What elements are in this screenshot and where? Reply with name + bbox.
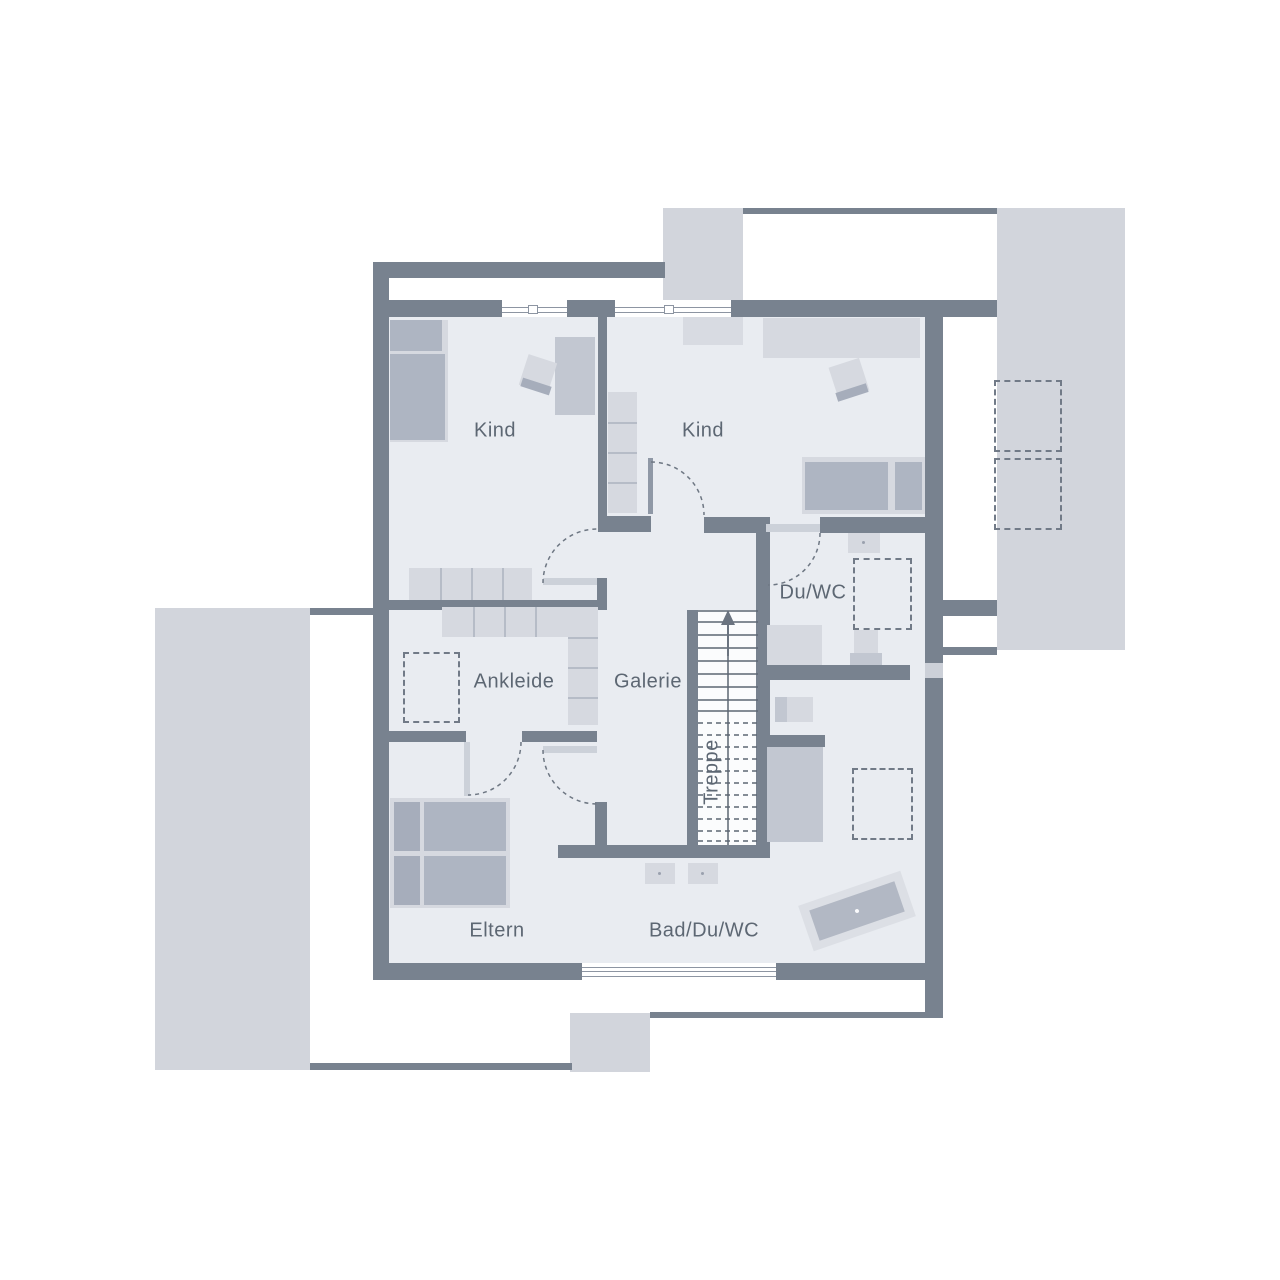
closet-divider <box>568 667 598 669</box>
wardrobe-divider <box>502 568 504 600</box>
roof-patch-top <box>663 208 743 300</box>
shower-outline <box>853 558 912 630</box>
window-frame-line <box>582 967 776 968</box>
closet-column <box>568 607 598 725</box>
shelf-divider <box>608 482 637 484</box>
room-label-treppe: Treppe <box>701 739 724 805</box>
bed-mattress <box>424 802 506 851</box>
toilet-bowl <box>854 630 878 654</box>
closet-divider <box>535 607 537 637</box>
balcony-furniture-outline <box>994 380 1062 452</box>
bed-pillow <box>895 462 922 510</box>
bed-mattress <box>424 856 506 905</box>
shelf-divider <box>608 452 637 454</box>
vanity-dot <box>701 872 704 875</box>
wall-duwc-south <box>770 665 910 680</box>
wardrobe-divider <box>440 568 442 600</box>
room-label-duwc: Du/WC <box>780 582 847 605</box>
desk <box>555 337 595 415</box>
door-leaf-galerie <box>543 746 597 753</box>
stairwell <box>698 610 758 845</box>
door-leaf-duwc <box>766 524 820 532</box>
washbasin-dot <box>862 541 865 544</box>
wall-kind-right-south-c <box>820 517 925 533</box>
wall-galerie-south <box>558 845 770 858</box>
closet-divider <box>504 607 506 637</box>
wall-exterior-left <box>373 262 389 980</box>
window-frame-line <box>582 971 776 972</box>
closet-divider <box>568 697 598 699</box>
balcony-furniture-outline <box>994 458 1062 530</box>
window-handle <box>528 305 538 314</box>
wall-galerie-north-stub <box>597 578 607 610</box>
balcony-edge-top <box>743 208 997 214</box>
room-label-eltern: Eltern <box>469 920 524 943</box>
wall-stub-right-b <box>943 647 997 655</box>
window-frame-line <box>582 976 776 977</box>
terrace-step-bottom <box>570 1013 650 1072</box>
wall-exterior-upper <box>373 262 665 278</box>
shelf-divider <box>608 422 637 424</box>
bed-mattress <box>805 462 888 510</box>
bed-pillow <box>394 802 420 851</box>
room-label-galerie: Galerie <box>614 671 682 694</box>
door-leaf-eltern <box>464 742 470 796</box>
roof-patch-inside <box>683 317 743 345</box>
terrace-edge-left-bottom <box>310 1063 572 1070</box>
wall-bad-stub <box>765 735 825 747</box>
window-right-wall <box>925 663 943 678</box>
planned-wardrobe-outline <box>403 652 460 723</box>
door-leaf-kind-right <box>648 458 653 514</box>
wall-kind-right-south-b <box>704 517 762 533</box>
bed-pillow <box>390 320 442 351</box>
floor-plan: Kind Kind Du/WC Ankleide Galerie Treppe … <box>0 0 1280 1280</box>
window-handle <box>664 305 674 314</box>
balcony-edge-bottom <box>650 1012 925 1018</box>
wall-galerie-jamb <box>595 802 607 850</box>
vanity-dot <box>658 872 661 875</box>
duwc-corner-unit <box>767 625 822 665</box>
bed-mattress <box>390 354 445 440</box>
wall-stair-west <box>687 610 698 845</box>
wardrobe-divider <box>471 568 473 600</box>
washbasin-edge <box>775 697 787 722</box>
wall-kind-right-south-a <box>598 516 651 532</box>
wall-ankleide-south-east <box>522 731 597 742</box>
wall-ankleide-south-west <box>373 731 466 742</box>
door-leaf-kind-left <box>543 578 597 585</box>
terrace-left <box>155 608 310 1070</box>
terrace-edge-top <box>310 608 373 615</box>
wall-exterior-right <box>925 300 943 1018</box>
room-label-kind-right: Kind <box>682 420 724 443</box>
closet-divider <box>568 637 598 639</box>
sideboard <box>763 318 920 358</box>
room-label-kind-left: Kind <box>474 420 516 443</box>
closet-divider <box>473 607 475 637</box>
room-label-bad: Bad/Du/WC <box>649 920 759 943</box>
wall-kind-divider <box>598 317 607 530</box>
shower-outline <box>852 768 913 840</box>
room-label-ankleide: Ankleide <box>474 671 555 694</box>
toilet-tank <box>850 653 882 665</box>
wall-stub-right-a <box>943 600 997 616</box>
bed-pillow <box>394 856 420 905</box>
shower-enclosure <box>767 747 823 842</box>
